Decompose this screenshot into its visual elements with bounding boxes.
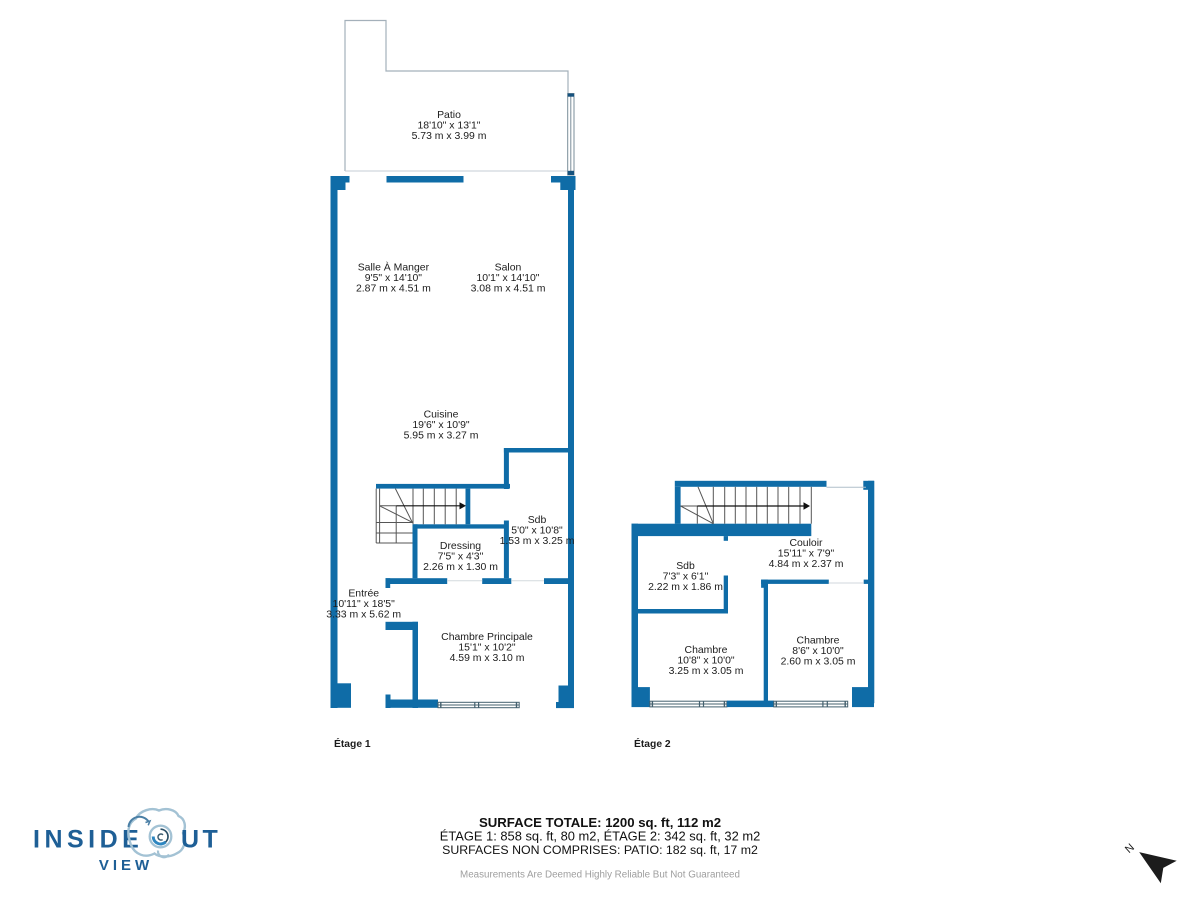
svg-text:15'11" x 7'9": 15'11" x 7'9"	[778, 549, 835, 560]
svg-text:5.73 m x 3.99 m: 5.73 m x 3.99 m	[412, 131, 487, 142]
svg-text:2.22 m x 1.86 m: 2.22 m x 1.86 m	[648, 582, 723, 593]
svg-text:2.87 m x 4.51 m: 2.87 m x 4.51 m	[356, 284, 431, 295]
svg-text:Étage 2: Étage 2	[634, 737, 671, 750]
svg-text:Salon: Salon	[495, 263, 522, 274]
svg-text:3.33 m x 5.62 m: 3.33 m x 5.62 m	[326, 610, 401, 621]
svg-text:2.60 m x 3.05 m: 2.60 m x 3.05 m	[781, 657, 856, 668]
svg-text:4.59 m x 3.10 m: 4.59 m x 3.10 m	[450, 653, 525, 664]
svg-text:Measurements Are Deemed Highly: Measurements Are Deemed Highly Reliable …	[460, 870, 740, 881]
svg-text:Chambre Principale: Chambre Principale	[441, 632, 533, 643]
svg-text:INSIDE: INSIDE	[33, 826, 143, 854]
svg-text:18'10" x 13'1": 18'10" x 13'1"	[417, 121, 480, 132]
svg-text:VIEW: VIEW	[99, 857, 153, 874]
svg-text:Sdb: Sdb	[528, 515, 547, 526]
svg-text:1.53 m x 3.25 m: 1.53 m x 3.25 m	[500, 536, 575, 547]
svg-text:10'1" x 14'10": 10'1" x 14'10"	[476, 273, 539, 284]
svg-text:Sdb: Sdb	[676, 561, 695, 572]
svg-text:Étage 1: Étage 1	[334, 737, 371, 750]
svg-text:7'3" x 6'1": 7'3" x 6'1"	[663, 572, 709, 583]
svg-text:Couloir: Couloir	[789, 538, 823, 549]
svg-text:Dressing: Dressing	[440, 541, 481, 552]
svg-text:5'0" x 10'8": 5'0" x 10'8"	[511, 525, 563, 536]
svg-text:ÉTAGE 1: 858 sq. ft, 80 m2, ÉT: ÉTAGE 1: 858 sq. ft, 80 m2, ÉTAGE 2: 342…	[440, 829, 761, 844]
svg-text:3.08 m x 4.51 m: 3.08 m x 4.51 m	[471, 284, 546, 295]
svg-text:Cuisine: Cuisine	[424, 410, 459, 421]
svg-text:Entrée: Entrée	[348, 589, 379, 600]
svg-text:10'8" x 10'0": 10'8" x 10'0"	[677, 656, 735, 667]
svg-text:19'6" x 10'9": 19'6" x 10'9"	[412, 420, 470, 431]
svg-text:SURFACES NON COMPRISES: PATIO:: SURFACES NON COMPRISES: PATIO: 182 sq. f…	[442, 843, 758, 857]
svg-text:3.25 m x 3.05 m: 3.25 m x 3.05 m	[669, 666, 744, 677]
svg-text:Patio: Patio	[437, 110, 461, 121]
svg-text:7'5" x 4'3": 7'5" x 4'3"	[438, 552, 484, 563]
svg-text:Chambre: Chambre	[685, 645, 728, 656]
svg-text:10'11" x 18'5": 10'11" x 18'5"	[333, 599, 396, 610]
svg-text:15'1" x 10'2": 15'1" x 10'2"	[458, 643, 516, 654]
svg-text:4.84 m x 2.37 m: 4.84 m x 2.37 m	[769, 559, 844, 570]
svg-text:2.26 m x 1.30 m: 2.26 m x 1.30 m	[423, 562, 498, 573]
svg-text:Chambre: Chambre	[797, 636, 840, 647]
svg-text:5.95 m x 3.27 m: 5.95 m x 3.27 m	[404, 431, 479, 442]
svg-text:8'6" x 10'0": 8'6" x 10'0"	[792, 646, 844, 657]
svg-text:9'5" x 14'10": 9'5" x 14'10"	[365, 273, 423, 284]
svg-text:UT: UT	[181, 826, 221, 854]
svg-text:Salle À Manger: Salle À Manger	[358, 261, 430, 274]
